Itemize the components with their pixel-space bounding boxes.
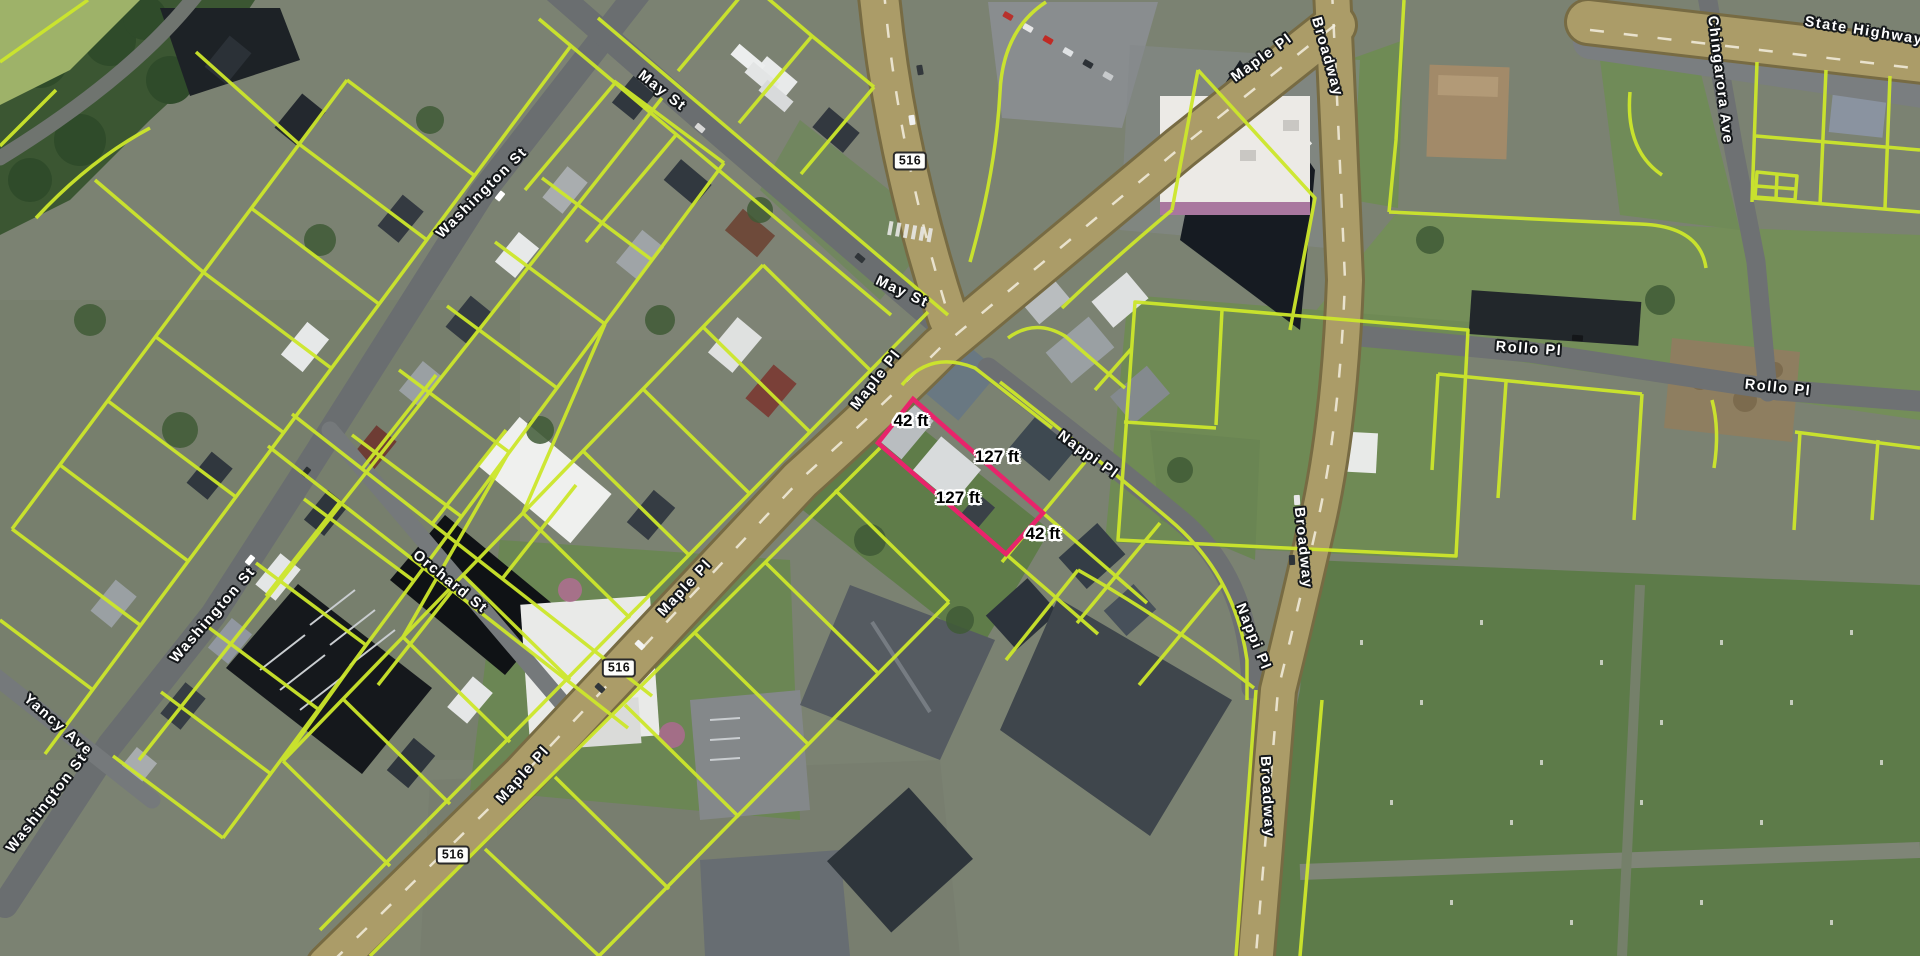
route-shield-516-2: 516	[602, 659, 636, 678]
dimension-label-depth-ne: 127 ft	[975, 447, 1019, 467]
map-viewport[interactable]: May St May St Washington St Washington S…	[0, 0, 1920, 956]
dimension-label-depth-sw: 127 ft	[936, 488, 980, 508]
dimension-label-frontage-se: 42 ft	[1026, 524, 1061, 544]
aerial-basemap	[0, 0, 1920, 956]
dimension-label-frontage-nw: 42 ft	[894, 411, 929, 431]
route-shield-516-3: 516	[436, 846, 470, 865]
route-shield-516-1: 516	[893, 152, 927, 171]
